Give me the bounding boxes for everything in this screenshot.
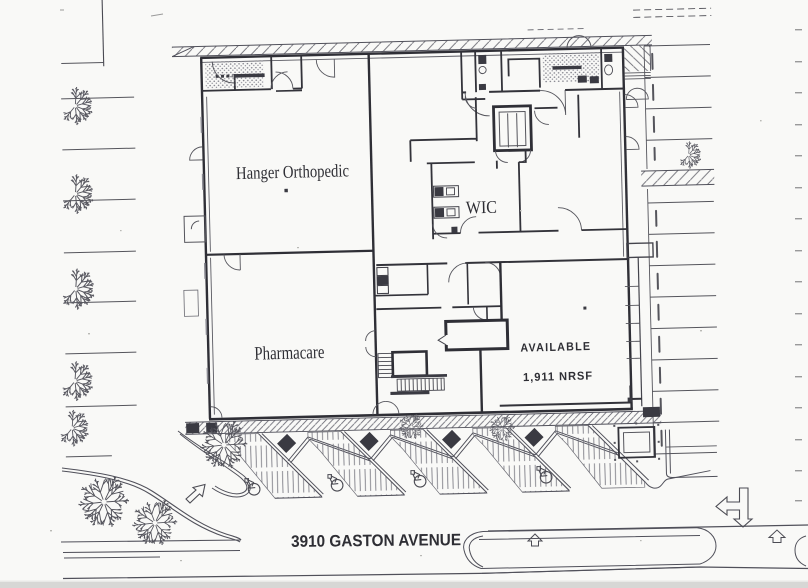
svg-text:AVAILABLE: AVAILABLE	[520, 340, 591, 355]
svg-text:3910 GASTON AVENUE: 3910 GASTON AVENUE	[291, 531, 461, 551]
svg-text:Hanger Orthopedic: Hanger Orthopedic	[236, 160, 349, 183]
svg-text:WIC: WIC	[466, 197, 497, 218]
svg-text:Pharmacare: Pharmacare	[254, 342, 324, 365]
svg-text:1,911 NRSF: 1,911 NRSF	[523, 369, 593, 384]
